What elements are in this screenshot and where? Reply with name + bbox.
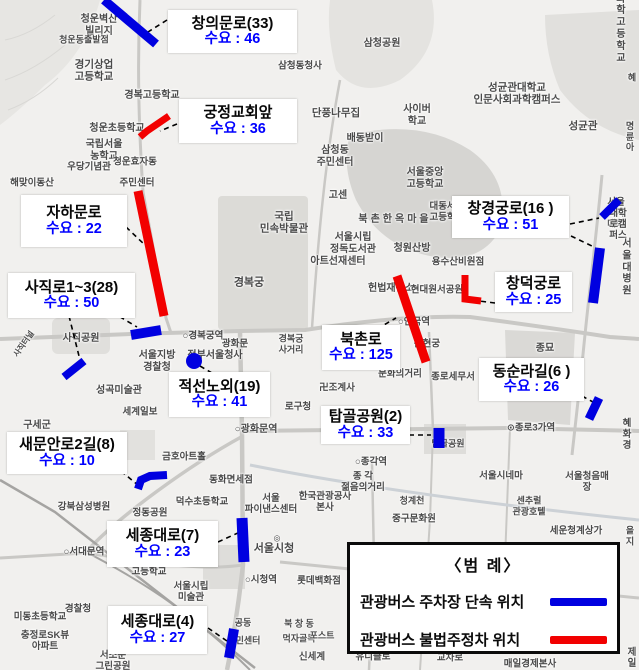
annotation-title: 세종대로(4) xyxy=(121,614,195,630)
annotation-demand-value: 수요 : 10 xyxy=(39,454,95,469)
annotation-box: 세종대로(7)수요 : 23 xyxy=(107,521,218,567)
legend-swatch-blue-line xyxy=(550,598,607,606)
annotation-box: 사직로1~3(28)수요 : 50 xyxy=(8,273,135,318)
annotation-demand-value: 수요 : 22 xyxy=(46,222,102,237)
legend-row-illegal: 관광버스 불법주정차 위치 xyxy=(360,629,607,650)
annotation-title: 자하문로 xyxy=(46,205,101,221)
legend-title: 〈범 례〉 xyxy=(350,552,617,576)
annotation-title: 사직로1~3(28) xyxy=(25,280,119,296)
annotation-demand-value: 수요 : 23 xyxy=(135,545,191,560)
annotation-title: 동순라길(6 ) xyxy=(493,364,571,380)
annotation-box: 탑골공원(2)수요 : 33 xyxy=(321,406,410,444)
annotation-demand-value: 수요 : 41 xyxy=(192,395,248,410)
annotation-demand-value: 수요 : 33 xyxy=(338,426,394,441)
legend-label-enforcement: 관광버스 주차장 단속 위치 xyxy=(360,591,524,612)
annotation-demand-value: 수요 : 46 xyxy=(205,32,261,47)
annotation-box: 적선노외(19)수요 : 41 xyxy=(169,372,270,417)
map-viewport: 청운벽산 빌리지청운동출발점경기상업 고등학교경복고등학교청운초등학교국립서울 … xyxy=(0,0,639,670)
annotation-box: 창의문로(33)수요 : 46 xyxy=(168,10,297,53)
annotation-box: 세종대로(4)수요 : 27 xyxy=(108,606,207,654)
annotation-demand-value: 수요 : 50 xyxy=(44,296,100,311)
annotation-title: 세종대로(7) xyxy=(126,528,200,544)
legend-row-enforcement: 관광버스 주차장 단속 위치 xyxy=(360,591,607,612)
annotation-title: 탑골공원(2) xyxy=(329,409,403,425)
annotation-title: 창경궁로(16 ) xyxy=(467,201,553,217)
annotation-box: 북촌로수요 : 125 xyxy=(322,325,400,370)
annotation-title: 적선노외(19) xyxy=(179,379,261,395)
annotation-box: 자하문로수요 : 22 xyxy=(21,195,127,247)
annotation-demand-value: 수요 : 125 xyxy=(329,348,393,363)
annotation-box: 창덕궁로수요 : 25 xyxy=(495,272,572,312)
annotation-title: 창의문로(33) xyxy=(192,16,274,32)
annotation-box: 동순라길(6 )수요 : 26 xyxy=(479,358,584,401)
annotation-title: 궁정교회앞 xyxy=(203,105,272,121)
annotation-box: 창경궁로(16 )수요 : 51 xyxy=(452,196,569,238)
legend: 〈범 례〉 관광버스 주차장 단속 위치 관광버스 불법주정차 위치 xyxy=(347,542,620,654)
legend-swatch-red-line xyxy=(550,636,607,644)
annotation-demand-value: 수요 : 25 xyxy=(506,293,562,308)
annotation-demand-value: 수요 : 27 xyxy=(130,631,186,646)
annotation-box: 새문안로2길(8)수요 : 10 xyxy=(7,432,127,474)
annotation-demand-value: 수요 : 36 xyxy=(210,122,266,137)
annotation-box: 궁정교회앞수요 : 36 xyxy=(179,99,297,143)
annotation-title: 창덕궁로 xyxy=(506,276,561,292)
annotation-demand-value: 수요 : 26 xyxy=(504,380,560,395)
legend-label-illegal: 관광버스 불법주정차 위치 xyxy=(360,629,520,650)
annotation-demand-value: 수요 : 51 xyxy=(483,218,539,233)
annotation-title: 북촌로 xyxy=(340,332,381,348)
annotation-title: 새문안로2길(8) xyxy=(19,437,115,453)
